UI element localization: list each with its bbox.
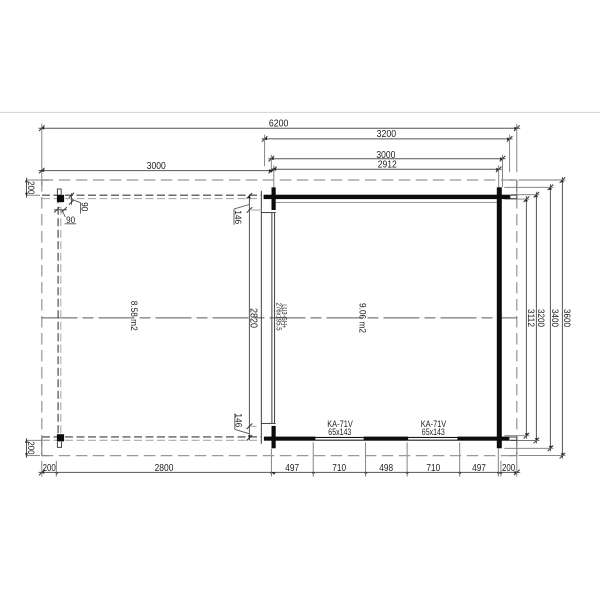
svg-text:276x195.5: 276x195.5 [274,303,281,331]
svg-text:3200: 3200 [377,129,397,140]
svg-text:146: 146 [233,210,243,224]
svg-text:2912: 2912 [378,159,397,170]
svg-text:6200: 6200 [269,119,289,130]
svg-text:200: 200 [26,441,36,454]
svg-text:9.06 m2: 9.06 m2 [358,303,369,333]
svg-text:65x143: 65x143 [422,426,445,437]
svg-text:710: 710 [332,463,346,474]
svg-text:65x143: 65x143 [328,426,351,437]
svg-text:2820: 2820 [248,308,259,329]
svg-text:90: 90 [80,202,90,211]
svg-text:90: 90 [66,215,75,225]
svg-text:710: 710 [426,463,440,474]
svg-text:200: 200 [26,181,36,194]
svg-text:3400: 3400 [549,309,560,327]
svg-text:497: 497 [285,463,299,474]
svg-text:498: 498 [379,463,393,474]
svg-text:200: 200 [502,463,516,474]
svg-text:3000: 3000 [147,161,166,172]
svg-text:2800: 2800 [155,463,174,474]
svg-text:146: 146 [234,413,244,427]
svg-text:3200: 3200 [535,309,546,327]
svg-text:497: 497 [472,463,486,474]
svg-text:200: 200 [43,463,57,474]
svg-text:3600: 3600 [561,309,572,327]
svg-text:8.58 m2: 8.58 m2 [129,301,140,331]
svg-text:3112: 3112 [525,309,536,327]
